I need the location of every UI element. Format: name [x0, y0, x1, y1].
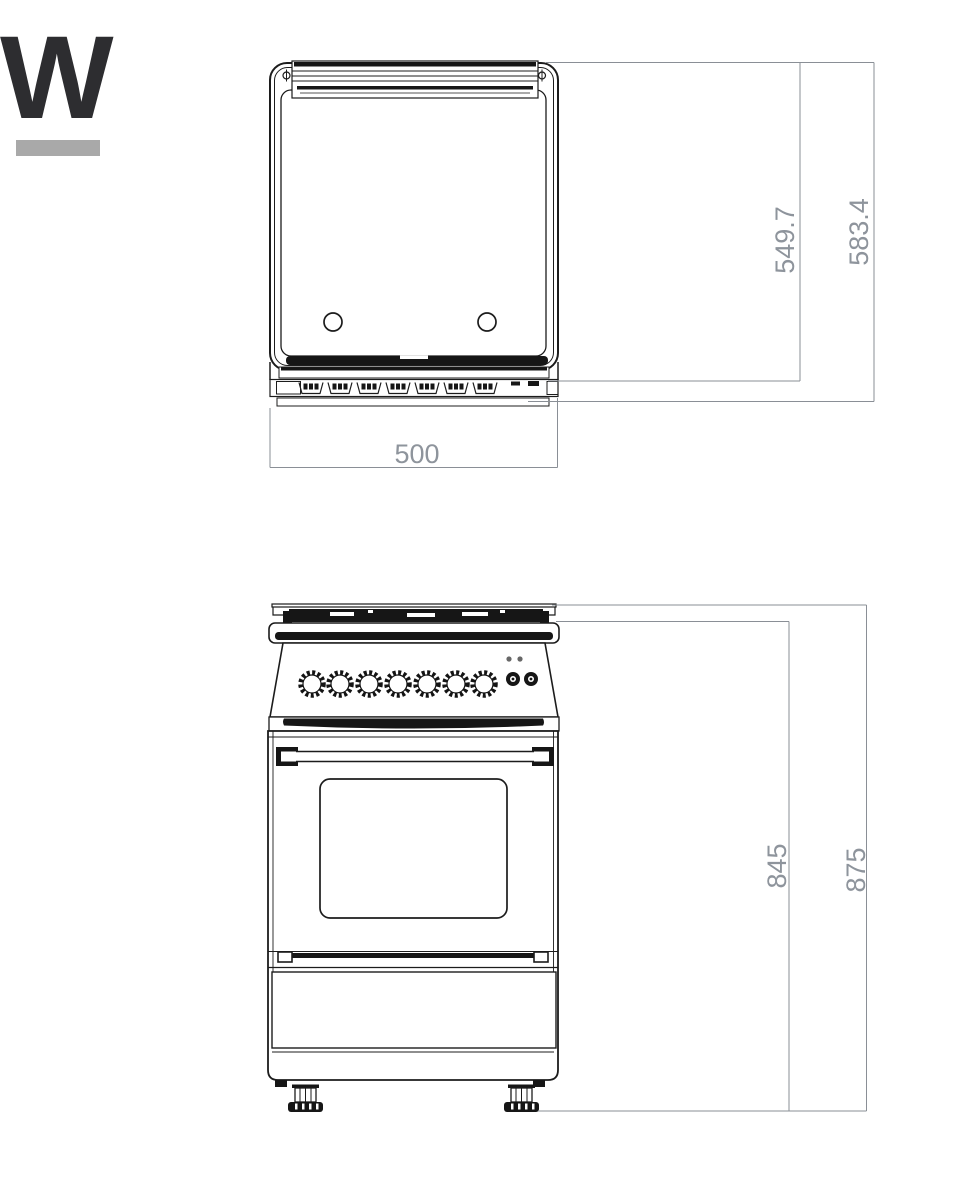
dim-label-height-to-hob: 845 — [762, 843, 792, 888]
indicator-dot — [506, 656, 511, 661]
top-view-front-edge — [270, 356, 558, 381]
top-view-body-outline — [270, 63, 558, 370]
adjustable-foot — [288, 1085, 323, 1113]
front-view-dimension-lines: 845 875 — [538, 605, 871, 1111]
top-view-base-strip — [277, 398, 549, 406]
front-view-hob — [269, 604, 559, 643]
oven-door-window — [320, 779, 507, 918]
top-view-lid-hinge-bar — [292, 61, 538, 98]
adjustable-foot — [504, 1085, 539, 1113]
dim-label-depth-overall: 583.4 — [844, 198, 874, 266]
top-view-drawing — [270, 61, 558, 406]
light-button — [524, 672, 538, 686]
ignition-button — [506, 672, 520, 686]
top-view-knob-strip — [270, 380, 558, 397]
storage-drawer — [272, 972, 556, 1048]
dim-label-height-overall: 875 — [841, 847, 871, 892]
dim-label-depth-inner: 549.7 — [770, 206, 800, 274]
indicator-dot — [517, 656, 522, 661]
panel-bottom-trim — [269, 717, 559, 731]
dim-label-width: 500 — [394, 439, 439, 469]
front-view-drawing — [268, 604, 559, 1112]
cooker-dimension-drawing: 549.7 583.4 500 — [0, 0, 960, 1200]
